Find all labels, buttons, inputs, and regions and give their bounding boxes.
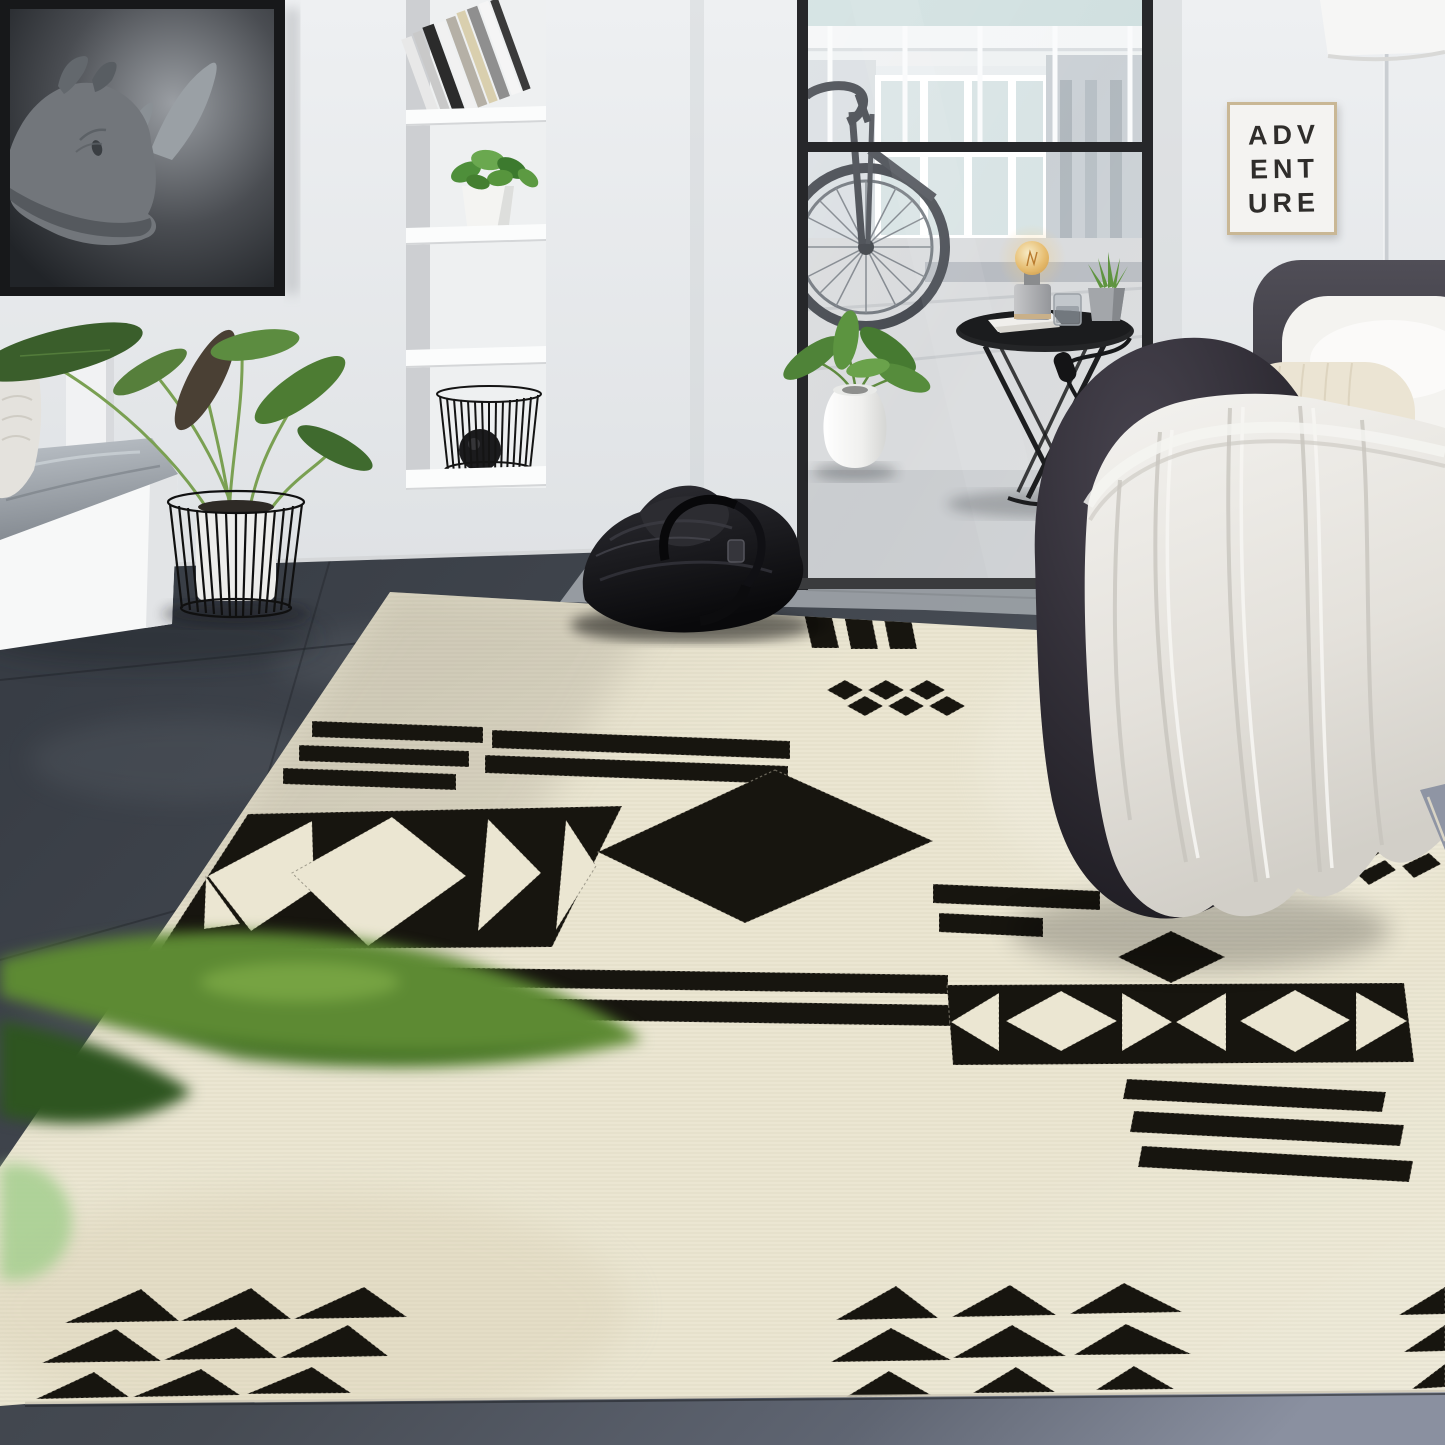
blurred-leaf-pale (0, 1164, 72, 1280)
foreground-blurred-leaves (0, 0, 1445, 1445)
living-room-photo: ADV ENT URE (0, 0, 1445, 1445)
